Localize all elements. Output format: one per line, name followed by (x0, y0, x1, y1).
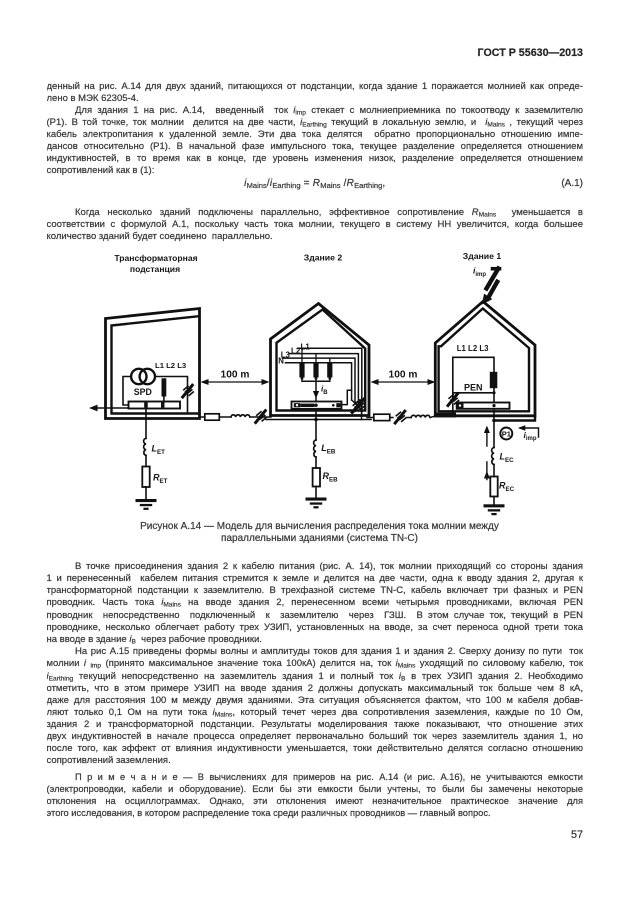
svg-text:Трансформаторная: Трансформаторная (114, 253, 197, 263)
svg-text:Здание 2: Здание 2 (304, 252, 343, 262)
svg-text:подстанция: подстанция (130, 264, 180, 274)
svg-text:RET: RET (153, 473, 168, 486)
svg-text:PEN: PEN (464, 383, 483, 393)
svg-text:iimp: iimp (524, 430, 537, 442)
svg-text:100 m: 100 m (221, 370, 250, 381)
svg-text:LEC: LEC (500, 452, 515, 465)
svg-text:REB: REB (323, 471, 339, 484)
svg-text:SPD: SPD (134, 387, 152, 397)
svg-text:L1 L2 L3: L1 L2 L3 (457, 344, 489, 353)
svg-text:LET: LET (152, 444, 166, 457)
svg-text:LEB: LEB (321, 443, 336, 456)
svg-text:N: N (278, 356, 284, 365)
svg-text:L2: L2 (291, 346, 301, 355)
svg-text:iB: iB (321, 385, 328, 396)
svg-text:Здание 1: Здание 1 (463, 251, 502, 261)
svg-text:iimp: iimp (473, 266, 486, 278)
svg-text:Р1: Р1 (502, 430, 511, 439)
svg-text:100 m: 100 m (389, 370, 418, 381)
svg-text:L1 L2 L3: L1 L2 L3 (155, 361, 186, 370)
svg-text:REC: REC (499, 480, 515, 493)
